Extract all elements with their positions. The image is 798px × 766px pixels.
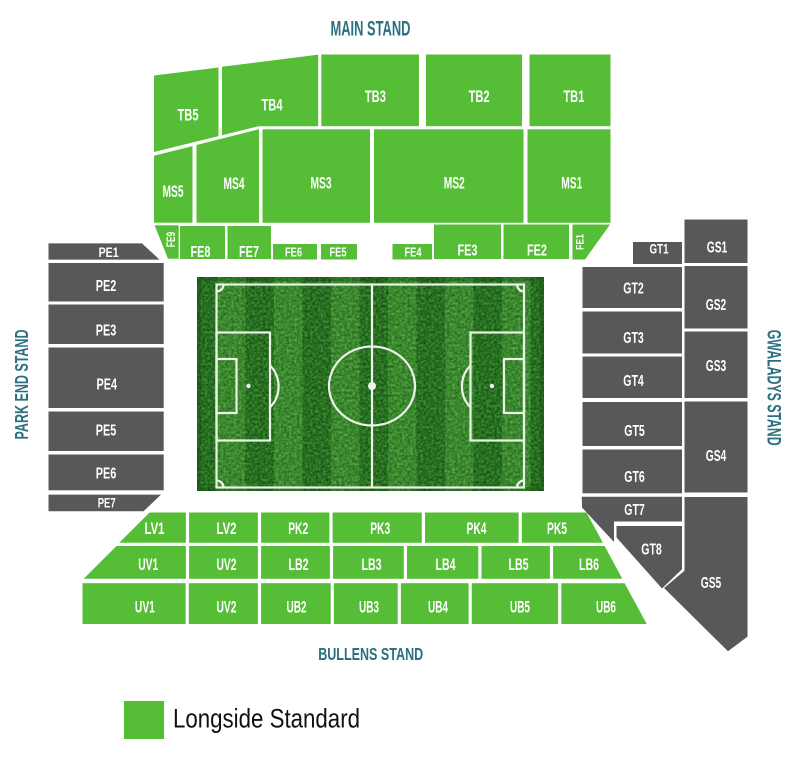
svg-text:GT6: GT6 xyxy=(624,469,645,486)
svg-text:PE3: PE3 xyxy=(96,323,117,340)
svg-text:GS4: GS4 xyxy=(706,448,727,465)
svg-text:TB3: TB3 xyxy=(365,87,386,106)
svg-text:PARK END STAND: PARK END STAND xyxy=(12,330,32,440)
svg-text:UB3: UB3 xyxy=(359,598,379,616)
svg-text:FE7: FE7 xyxy=(239,244,259,261)
svg-text:TB5: TB5 xyxy=(178,106,199,125)
svg-text:FE1: FE1 xyxy=(575,234,587,250)
svg-text:LV2: LV2 xyxy=(217,520,237,538)
svg-text:MS1: MS1 xyxy=(561,174,582,193)
svg-text:Longside Standard: Longside Standard xyxy=(173,704,360,734)
svg-text:PE2: PE2 xyxy=(96,278,117,295)
svg-text:GS3: GS3 xyxy=(706,358,727,375)
svg-text:MS3: MS3 xyxy=(311,174,332,193)
svg-text:PK5: PK5 xyxy=(547,520,567,538)
svg-text:UB6: UB6 xyxy=(596,598,616,616)
svg-text:MS4: MS4 xyxy=(224,174,245,193)
svg-text:UV2: UV2 xyxy=(217,556,237,574)
svg-text:PE7: PE7 xyxy=(98,496,116,511)
svg-text:FE8: FE8 xyxy=(191,244,211,261)
svg-text:UV1: UV1 xyxy=(135,598,155,616)
svg-text:GT4: GT4 xyxy=(623,373,644,390)
svg-text:LB6: LB6 xyxy=(579,556,599,574)
svg-text:PE1: PE1 xyxy=(99,245,119,260)
svg-text:FE2: FE2 xyxy=(527,242,547,259)
svg-text:PE6: PE6 xyxy=(96,466,117,483)
svg-text:FE6: FE6 xyxy=(285,245,302,259)
svg-text:GT3: GT3 xyxy=(623,330,644,347)
svg-text:BULLENS STAND: BULLENS STAND xyxy=(318,644,423,664)
svg-text:PE4: PE4 xyxy=(97,377,118,394)
svg-text:UV1: UV1 xyxy=(138,556,158,574)
svg-text:LB4: LB4 xyxy=(436,556,457,574)
svg-text:LB2: LB2 xyxy=(289,556,309,574)
svg-text:UB5: UB5 xyxy=(510,598,530,616)
svg-text:FE9: FE9 xyxy=(164,232,178,248)
svg-text:FE4: FE4 xyxy=(405,245,422,259)
svg-text:PK4: PK4 xyxy=(467,520,488,538)
svg-text:GT8: GT8 xyxy=(641,542,662,559)
svg-text:UB4: UB4 xyxy=(428,598,448,616)
svg-text:PK2: PK2 xyxy=(288,520,308,538)
svg-text:GS2: GS2 xyxy=(706,297,727,314)
svg-text:GT7: GT7 xyxy=(624,502,645,519)
svg-text:MAIN STAND: MAIN STAND xyxy=(331,17,411,41)
svg-text:UV2: UV2 xyxy=(217,598,237,616)
svg-text:GWALADYS STAND: GWALADYS STAND xyxy=(763,330,784,446)
svg-text:PE5: PE5 xyxy=(96,423,117,440)
svg-text:LB3: LB3 xyxy=(362,556,382,574)
svg-text:FE5: FE5 xyxy=(330,245,347,259)
svg-text:TB2: TB2 xyxy=(469,87,490,106)
svg-text:TB1: TB1 xyxy=(563,87,584,106)
svg-text:PK3: PK3 xyxy=(370,520,390,538)
svg-text:MS2: MS2 xyxy=(444,174,465,193)
svg-text:LV1: LV1 xyxy=(145,520,165,538)
svg-text:GS1: GS1 xyxy=(707,240,728,257)
svg-text:GT2: GT2 xyxy=(623,281,644,298)
svg-text:GS5: GS5 xyxy=(701,575,722,592)
svg-text:GT5: GT5 xyxy=(624,423,645,440)
svg-text:UB2: UB2 xyxy=(287,598,307,616)
svg-text:MS5: MS5 xyxy=(163,182,184,201)
svg-text:LB5: LB5 xyxy=(509,556,529,574)
svg-text:GT1: GT1 xyxy=(650,241,669,257)
svg-text:TB4: TB4 xyxy=(262,96,283,115)
svg-text:FE3: FE3 xyxy=(458,242,478,259)
